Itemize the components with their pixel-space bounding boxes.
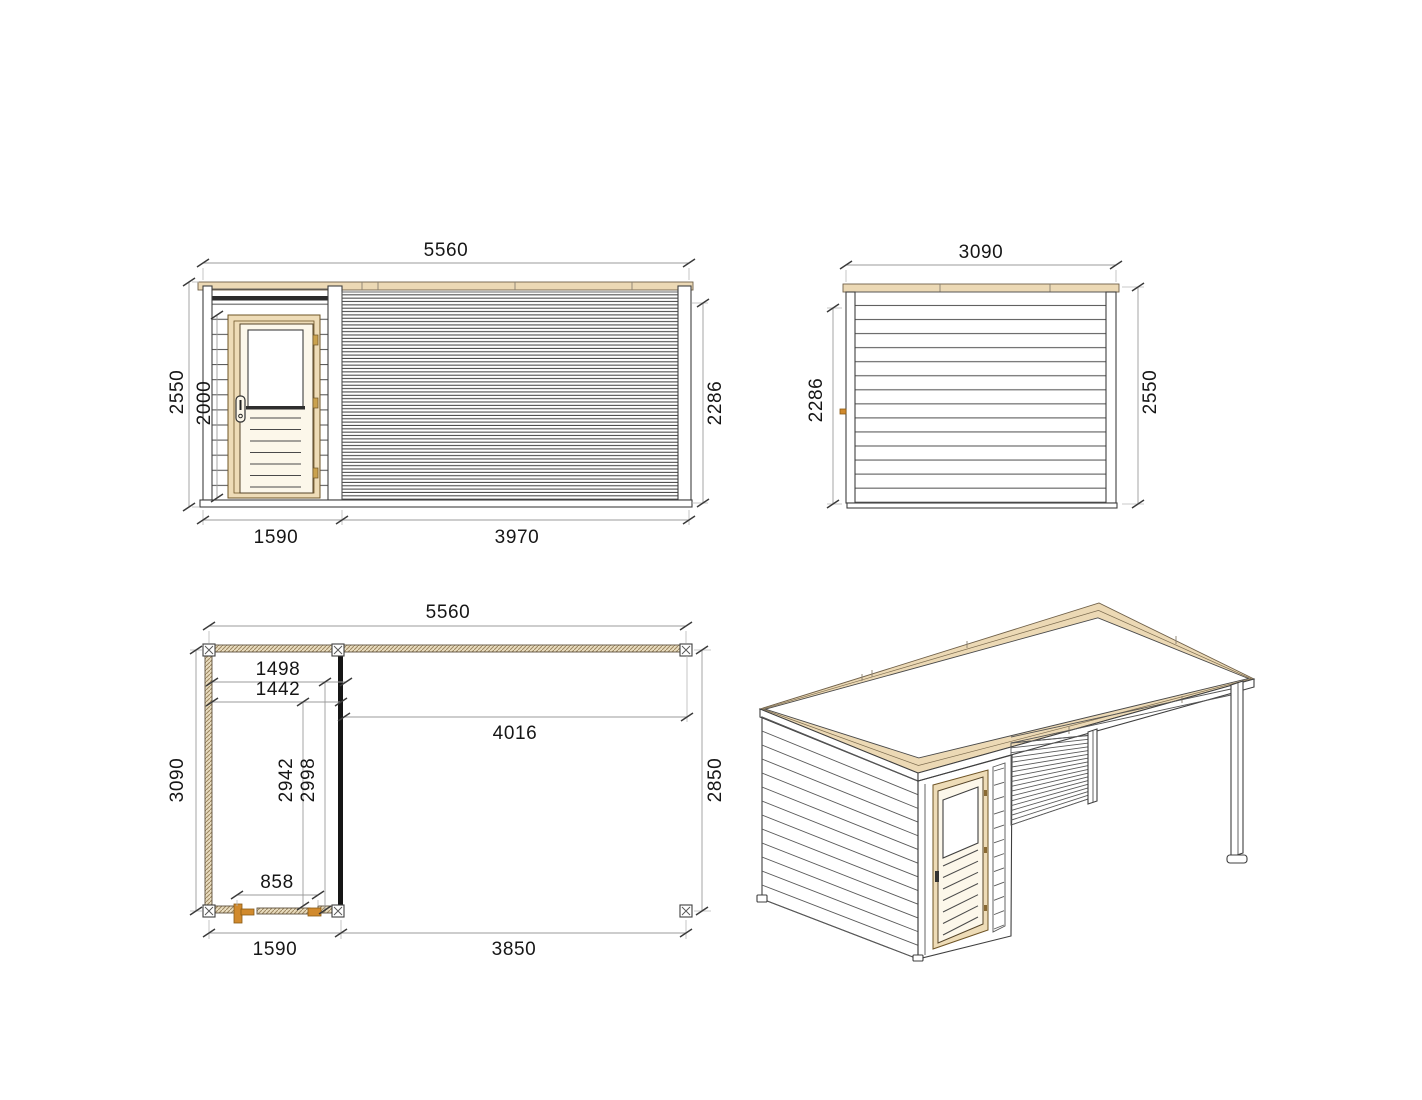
plan-post: [680, 905, 692, 917]
plan-dim-total-depth: 3090: [167, 758, 188, 803]
plan-dim-pergola-inner: 4016: [493, 723, 538, 744]
front-base: [200, 500, 692, 507]
plan-post: [203, 644, 215, 656]
front-right-post: [678, 286, 691, 500]
plan-left-wall: [205, 652, 212, 906]
front-door: [228, 315, 320, 498]
plan-dim-room-depth-b: 2998: [298, 758, 319, 803]
side-plank-wall: [855, 292, 1106, 503]
side-base: [847, 503, 1117, 508]
iso-corner-post: [1227, 681, 1247, 863]
front-dim-total-height: 2550: [167, 370, 188, 415]
front-building: [198, 282, 693, 507]
plan-post: [680, 644, 692, 656]
isometric-view: [745, 585, 1325, 1015]
plan-post: [332, 644, 344, 656]
side-building: [840, 284, 1119, 508]
plan-dim-door-width: 858: [260, 872, 294, 893]
front-dim-wall-height: 2286: [705, 381, 726, 426]
plan-dim-total-width: 5560: [426, 602, 471, 623]
plan-dimensions: 5560 1498 1442 4016 3090 2942 2998: [167, 602, 726, 960]
plan-post: [332, 905, 344, 917]
plan-room-right-wall: [338, 656, 343, 905]
front-door-hinge: [313, 398, 318, 408]
front-louver-wall: [342, 292, 678, 500]
side-dim-total-height: 2550: [1140, 370, 1161, 415]
plan-dim-room-width: 1590: [253, 939, 298, 960]
front-dim-door-height: 2000: [194, 381, 215, 426]
drawing-canvas: 5560 2550 2000 2286 1590 3970: [0, 0, 1422, 1100]
plan-door: [234, 904, 321, 923]
iso-door: [933, 770, 988, 949]
iso-foot: [757, 895, 767, 902]
plan-dim-room-inner-a: 1498: [256, 659, 301, 680]
side-right-post: [1106, 292, 1116, 503]
side-door-handle-mark: [840, 409, 846, 414]
front-elevation-view: 5560 2550 2000 2286 1590 3970: [170, 240, 740, 560]
front-door-hinge: [313, 468, 318, 478]
iso-foot: [913, 955, 923, 961]
iso-roof: [760, 603, 1254, 781]
front-door-handle: [236, 396, 245, 422]
plan-top-beam: [203, 645, 692, 652]
side-dim-wall-height: 2286: [806, 378, 827, 423]
front-dim-pergola-width: 3970: [495, 527, 540, 548]
side-elevation-view: 3090 2286 2550: [800, 240, 1220, 560]
plan-dim-room-depth-a: 2942: [276, 758, 297, 803]
plan-post: [203, 905, 215, 917]
iso-louver-post: [1088, 729, 1097, 804]
plan-dim-room-inner-b: 1442: [256, 679, 301, 700]
front-dim-room-width: 1590: [254, 527, 299, 548]
side-dim-total-width: 3090: [959, 242, 1004, 263]
front-mid-post: [328, 286, 342, 500]
floor-plan-view: 5560 1498 1442 4016 3090 2942 2998: [170, 590, 750, 1010]
plan-dim-pergola-length: 3850: [492, 939, 537, 960]
front-header-band: [212, 296, 328, 301]
side-left-post: [846, 292, 855, 503]
plan-door-leaf: [257, 908, 310, 914]
iso-corner-trim: [993, 763, 1005, 932]
front-door-window: [248, 330, 303, 407]
side-roof-band: [843, 284, 1119, 292]
front-dim-total-width: 5560: [424, 240, 469, 261]
iso-door-handle: [935, 871, 939, 882]
plan-dim-pergola-depth: 2850: [705, 758, 726, 803]
front-door-hinge: [313, 335, 318, 345]
